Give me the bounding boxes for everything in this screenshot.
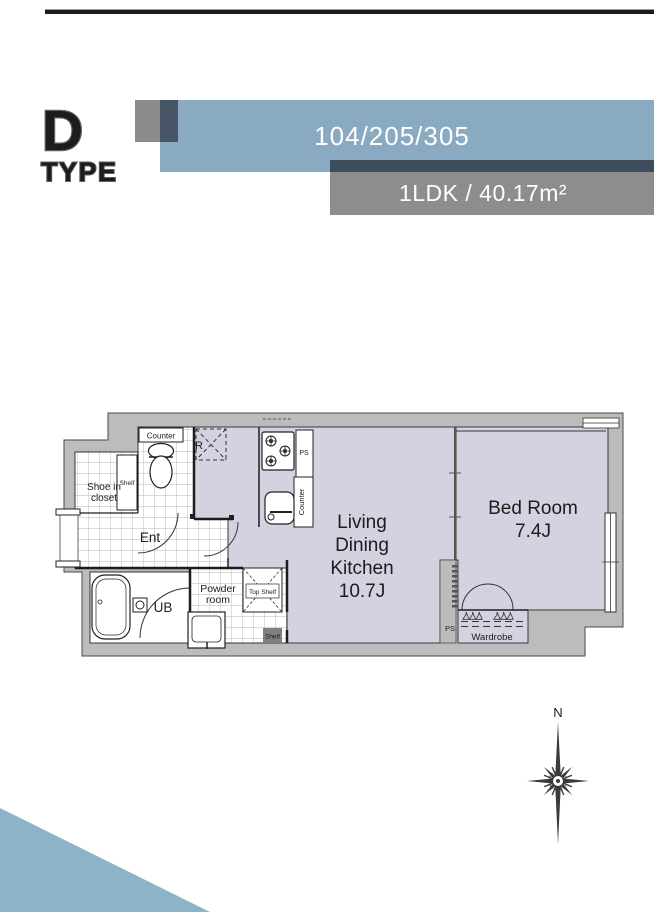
floor-plan: Living Dining Kitchen 10.7J Bed Room 7.4… bbox=[50, 402, 640, 677]
shoe-closet-label-line1: Shoe in bbox=[87, 482, 121, 493]
powder-label-line2: room bbox=[206, 594, 230, 606]
compass-north-label: N bbox=[553, 705, 562, 720]
unit-bath-label: UB bbox=[154, 600, 173, 615]
toilet-counter-label: Counter bbox=[147, 432, 176, 441]
shoe-shelf-label: Shelf bbox=[120, 480, 135, 487]
unit-spec-dark-strip bbox=[330, 160, 654, 172]
ldk-label-line2: Dining bbox=[335, 535, 389, 556]
bedroom-ps-label: PS bbox=[445, 624, 455, 633]
entry-door bbox=[56, 509, 80, 567]
shoe-closet-label-line2: closet bbox=[91, 493, 117, 504]
entrance-label: Ent bbox=[140, 530, 161, 545]
bedroom-top-window bbox=[583, 418, 619, 428]
logo-letter: D bbox=[42, 99, 83, 163]
top-shelf-label: Top Shelf bbox=[249, 589, 276, 596]
unit-spec-body: 1LDK / 40.17m² bbox=[330, 172, 654, 215]
type-logo: D TYPE bbox=[35, 90, 185, 190]
bedroom-size-label: 7.4J bbox=[515, 521, 551, 542]
ldk-label-line1: Living bbox=[337, 512, 387, 533]
ldk-label-line3: Kitchen bbox=[330, 558, 393, 579]
wardrobe-label: Wardrobe bbox=[471, 632, 512, 643]
floor-plan-page: 104/205/305 1LDK / 40.17m² D TYPE bbox=[0, 0, 654, 912]
wall-cap bbox=[229, 515, 234, 520]
bedroom-label: Bed Room bbox=[488, 498, 578, 519]
kitchen-ps-label: PS bbox=[299, 450, 309, 457]
ldk-label-line4: 10.7J bbox=[339, 581, 385, 602]
refrigerator-label: R bbox=[195, 440, 203, 452]
logo-gray-square bbox=[135, 100, 160, 142]
bedroom-side-window bbox=[602, 513, 619, 612]
bathtub bbox=[92, 575, 130, 639]
unit-spec-bar: 1LDK / 40.17m² bbox=[330, 160, 654, 215]
top-rule bbox=[45, 9, 654, 14]
kitchen-counter-label: Counter bbox=[297, 488, 306, 515]
logo-dark-square bbox=[160, 100, 178, 142]
unit-numbers: 104/205/305 bbox=[314, 121, 470, 152]
unit-spec: 1LDK / 40.17m² bbox=[399, 180, 567, 207]
wall-cap bbox=[190, 514, 195, 519]
compass: N bbox=[510, 698, 606, 850]
bath-mixer bbox=[133, 598, 147, 612]
bottom-corner-triangle bbox=[0, 808, 210, 912]
logo-word: TYPE bbox=[41, 157, 118, 187]
powder-shelf-label: Shelf bbox=[265, 634, 280, 641]
